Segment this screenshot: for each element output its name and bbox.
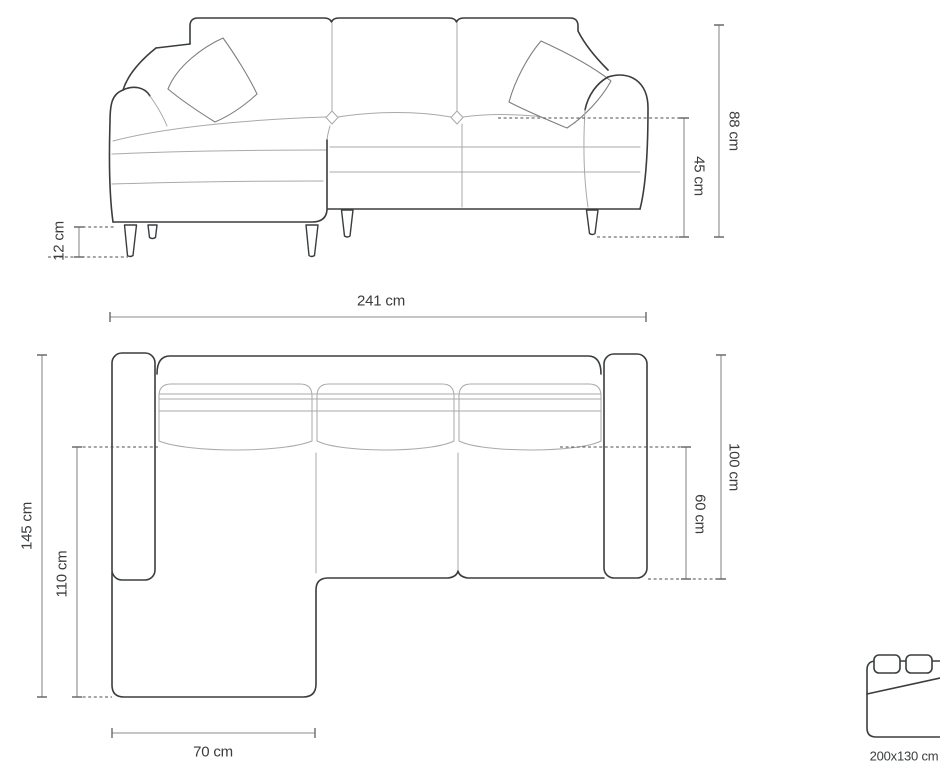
- label-seat-depth: 60 cm: [692, 494, 709, 534]
- plan-right-armrest: [604, 354, 647, 578]
- dim-total-height: [714, 25, 724, 237]
- front-view: [48, 18, 724, 257]
- front-right-arm-inner: [584, 110, 588, 207]
- front-chaise-seam-upper: [112, 150, 326, 154]
- front-tuft-diamond-right: [451, 111, 463, 124]
- dim-total-depth: [37, 355, 47, 697]
- front-left-arm-roll: [123, 87, 150, 96]
- front-cushion-front-edge-mid: [327, 126, 330, 141]
- label-total-width: 241 cm: [357, 293, 405, 310]
- dim-total-width: [110, 312, 646, 322]
- front-leg-chaise-right: [306, 225, 318, 257]
- bed-icon: [867, 655, 940, 737]
- front-left-pillow: [168, 38, 257, 122]
- bed-blanket-fold: [867, 678, 940, 694]
- dim-seat-height: [679, 118, 689, 237]
- plan-backrest-top-edge: [157, 356, 601, 374]
- diagram-linework: [0, 0, 940, 780]
- front-left-arm-outer: [109, 48, 156, 222]
- front-leg-chaise-left: [125, 225, 137, 257]
- front-backrest-left-slope: [156, 44, 190, 48]
- label-total-depth: 145 cm: [19, 502, 36, 550]
- front-chaise-seam-lower: [112, 181, 323, 184]
- bed-pillow-right: [906, 655, 932, 673]
- dim-leg-height: [74, 227, 84, 257]
- bed-pillow-left: [874, 655, 900, 673]
- front-cushion-top-chaise: [113, 117, 326, 141]
- label-body-depth: 100 cm: [726, 443, 743, 491]
- plan-left-armrest: [112, 353, 155, 580]
- label-total-height: 88 cm: [726, 111, 743, 151]
- front-leg-body-right: [587, 210, 599, 235]
- dim-chaise-width: [112, 728, 315, 738]
- plan-chaise-and-seat-front: [112, 571, 604, 697]
- front-cushion-top-middle: [338, 113, 451, 118]
- sofa-dimension-diagram: 88 cm 45 cm 12 cm 241 cm 145 cm 110 cm 7…: [0, 0, 940, 780]
- front-right-arm-outer: [608, 75, 648, 209]
- label-chaise-width: 70 cm: [193, 744, 233, 761]
- label-chaise-length: 110 cm: [54, 551, 71, 598]
- front-leg-chaise-back: [148, 225, 157, 239]
- front-left-arm-inner: [150, 96, 167, 126]
- label-seat-height: 45 cm: [691, 156, 708, 196]
- label-sleeping-area: 200x130 cm: [870, 749, 939, 764]
- dim-chaise-length: [72, 447, 82, 697]
- top-view: [37, 312, 726, 738]
- label-leg-height: 12 cm: [51, 221, 68, 261]
- dim-body-depth: [716, 355, 726, 579]
- dim-seat-depth: [681, 447, 691, 579]
- front-tuft-diamond-left: [326, 111, 338, 124]
- front-leg-body-left: [342, 210, 354, 237]
